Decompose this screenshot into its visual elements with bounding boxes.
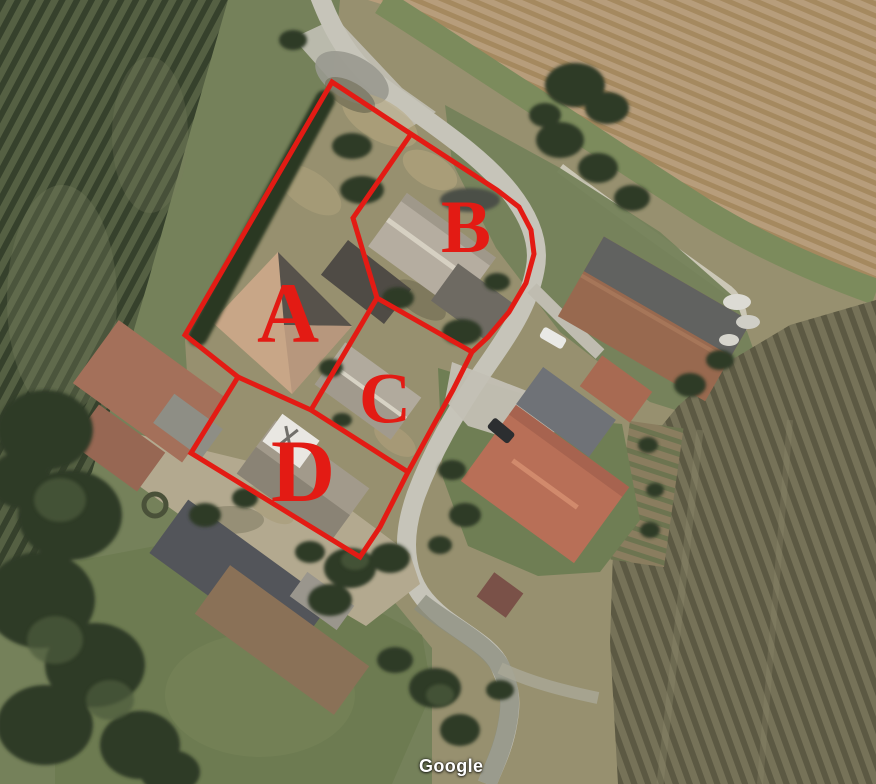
parcel-label-d: D: [271, 428, 335, 517]
google-watermark: Google: [419, 756, 483, 777]
parcel-label-a: A: [257, 270, 319, 356]
aerial-photo: [0, 0, 876, 784]
parcel-label-b: B: [441, 190, 491, 265]
parcel-label-c: C: [359, 363, 411, 435]
satellite-map-image: A B C D Google: [0, 0, 876, 784]
